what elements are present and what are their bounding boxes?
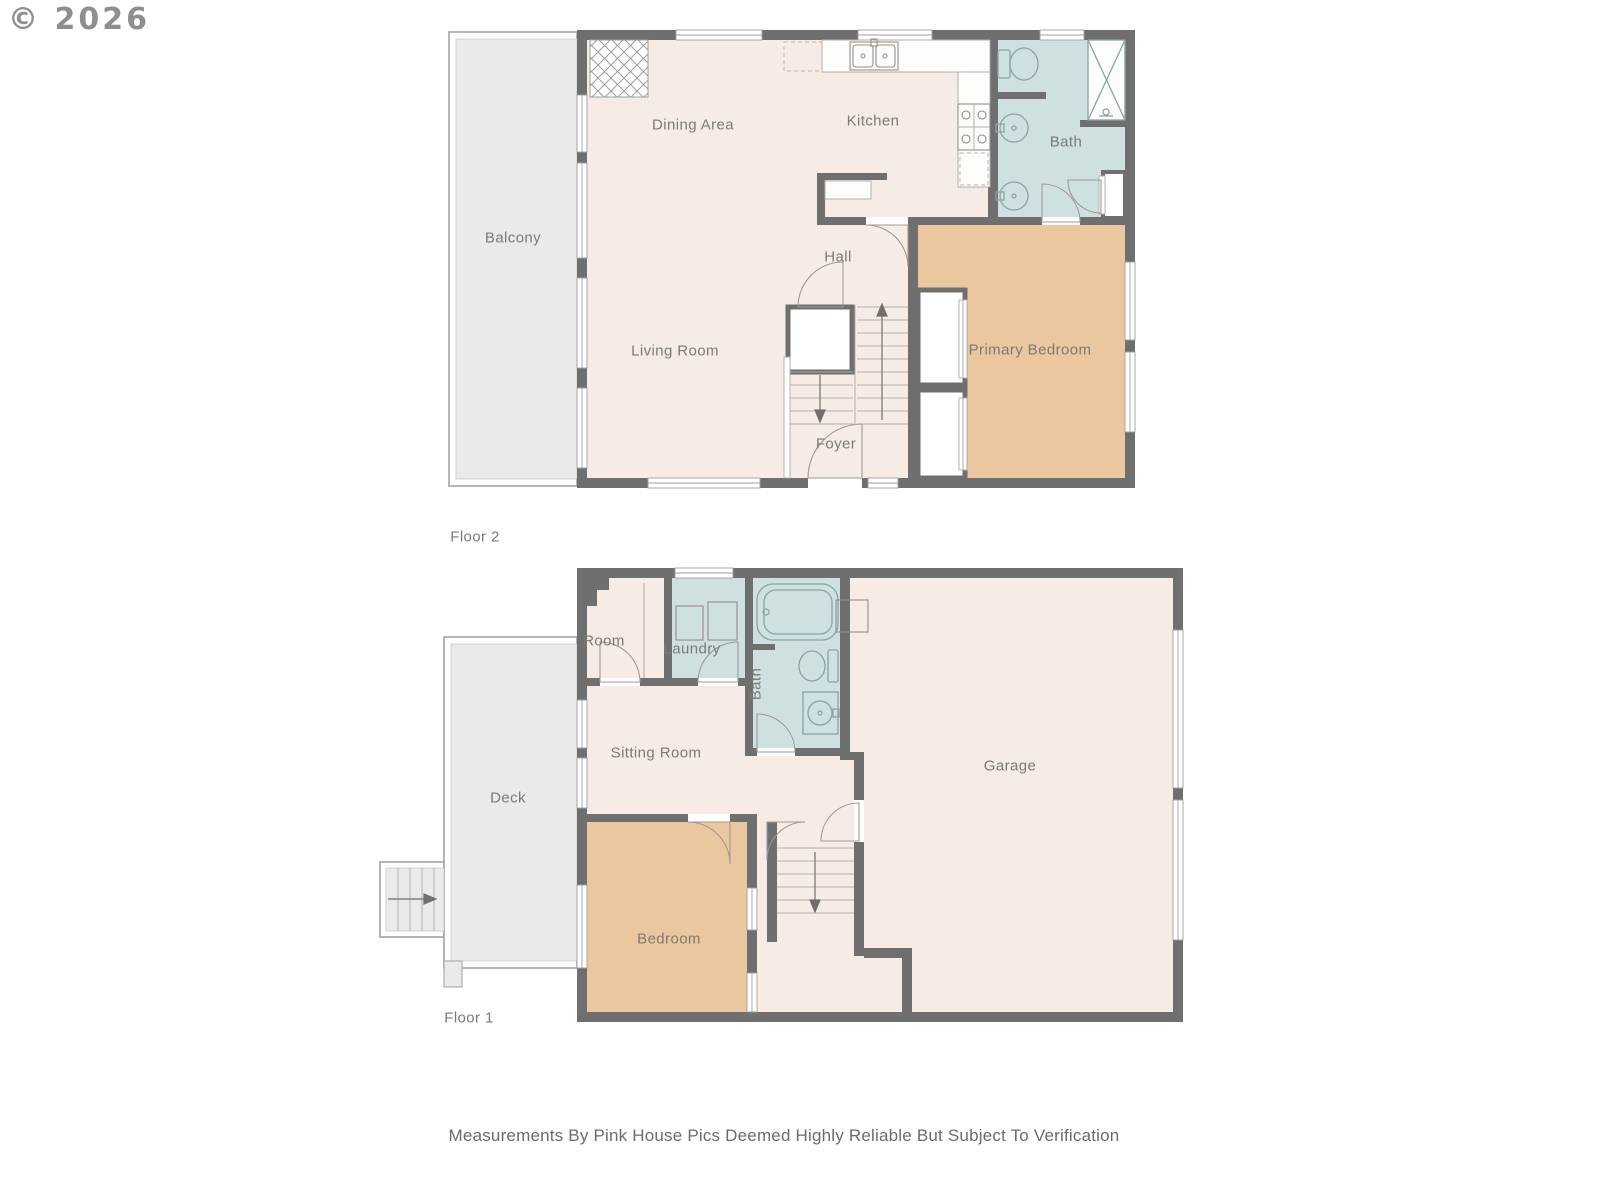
primary-bedroom-closets (918, 290, 967, 478)
room-label-hall: Hall (824, 249, 851, 266)
room-label-sitting-room: Sitting Room (611, 745, 702, 762)
floor2-bath-door-opening (1042, 217, 1080, 225)
room-label-bath-floor2: Bath (1050, 134, 1082, 151)
floor1-bath-area (753, 578, 840, 752)
room-label-balcony: Balcony (485, 230, 541, 247)
room-label-garage: Garage (984, 758, 1036, 775)
floor1-bedroom-area (587, 818, 747, 1012)
disclaimer-text: Measurements By Pink House Pics Deemed H… (449, 1126, 1120, 1146)
room-label-primary-bedroom: Primary Bedroom (969, 342, 1092, 359)
room-label-bedroom: Bedroom (637, 931, 701, 948)
floor2-label: Floor 2 (450, 529, 500, 546)
room-label-dining-area: Dining Area (652, 117, 734, 134)
room-label-laundry: Laundry (663, 641, 720, 658)
copyright-text: © 2026 (8, 2, 150, 37)
floorplan-page: © 2026 Balcony Dining Area Kitchen Bath … (0, 0, 1600, 1200)
room-label-deck: Deck (490, 790, 526, 807)
deck-stairs (380, 862, 444, 937)
floor2-entry-door-opening (808, 478, 862, 488)
shower-icon (1088, 40, 1125, 120)
floorplan-graphic (0, 0, 1600, 1200)
room-label-foyer: Foyer (816, 436, 856, 453)
floor1-bedroom-door-opening (688, 814, 730, 822)
floor2-plan (449, 30, 1135, 488)
bath-closet (1099, 172, 1125, 218)
stair-closet (788, 307, 852, 372)
room-label-kitchen: Kitchen (847, 113, 900, 130)
kitchen-peninsula-counter (825, 181, 871, 199)
floor2-bedroom-door-opening (866, 217, 908, 225)
room-label-living-room: Living Room (631, 343, 719, 360)
floor1-deck-area (380, 637, 577, 987)
floor2-balcony-area (449, 32, 577, 486)
room-label-room: Room (583, 633, 625, 650)
floor1-label: Floor 1 (444, 1010, 494, 1027)
fireplace-hatch-pattern (590, 40, 648, 97)
room-label-bath-floor1: Bath (748, 668, 765, 700)
